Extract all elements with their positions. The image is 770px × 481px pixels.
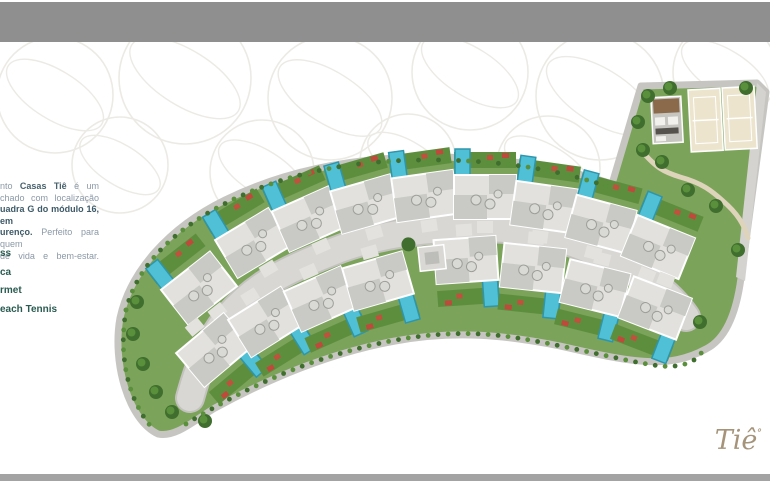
shrub [126, 377, 131, 382]
shrub [263, 379, 268, 384]
intro-line-2: chado com localização [0, 193, 99, 205]
shrub [699, 351, 704, 356]
shrub [134, 280, 139, 285]
shrub [121, 347, 126, 352]
amenity-item-brinquedoteca: ca [0, 268, 99, 278]
shrub [555, 343, 560, 348]
shrub [673, 364, 678, 369]
shrub [663, 364, 668, 369]
shrub [122, 318, 127, 323]
clubhouse [651, 96, 683, 144]
shrub [223, 201, 228, 206]
shrub [486, 160, 491, 165]
shrub [241, 193, 246, 198]
shrub [165, 241, 170, 246]
shrub [136, 405, 141, 410]
shrub [188, 222, 193, 227]
shrub [486, 332, 491, 337]
shrub [525, 337, 530, 342]
shrub [396, 337, 401, 342]
top-gray-bar [0, 2, 770, 42]
site-plan-svg [0, 0, 770, 481]
shrub [574, 347, 579, 352]
shrub [317, 168, 322, 173]
shrub [436, 158, 441, 163]
driveway [456, 224, 473, 237]
logo-bird-icon: ˚ [755, 428, 761, 442]
amenity-item-fitness: ss [0, 249, 99, 259]
shrub [123, 367, 128, 372]
shrub [319, 357, 324, 362]
shrub [426, 333, 431, 338]
shrub [338, 351, 343, 356]
shrub [210, 406, 215, 411]
shrub [288, 175, 293, 180]
shrub [151, 255, 156, 260]
shrub [180, 228, 185, 233]
shrub [386, 159, 391, 164]
shrub [476, 159, 481, 164]
shrub [126, 298, 131, 303]
lounger-marker [502, 153, 509, 158]
shrub [683, 362, 688, 367]
shrub [259, 185, 264, 190]
lounger-marker [505, 304, 512, 310]
shrub [506, 162, 511, 167]
shrub [291, 367, 296, 372]
shrub [633, 360, 638, 365]
shrub [192, 416, 197, 421]
shrub [623, 358, 628, 363]
shrub [205, 211, 210, 216]
shrub [327, 166, 332, 171]
shrub [145, 263, 150, 268]
shrub [300, 364, 305, 369]
shrub [604, 353, 609, 358]
shrub [377, 341, 382, 346]
shrub [141, 414, 146, 419]
sand-court [688, 88, 723, 152]
shrub [272, 375, 277, 380]
shrub [121, 337, 126, 342]
shrub [121, 328, 126, 333]
shrub [476, 332, 481, 337]
shrub [122, 357, 127, 362]
shrub [346, 163, 351, 168]
amenities-list: ss ca rmet each Tennis [0, 249, 99, 323]
shrub [584, 178, 589, 183]
shrub [565, 173, 570, 178]
shrub [643, 361, 648, 366]
shrub [603, 184, 608, 189]
shrub [250, 189, 255, 194]
shrub [416, 158, 421, 163]
shrub [526, 165, 531, 170]
shrub [184, 422, 189, 427]
shrub [416, 334, 421, 339]
shrub [254, 383, 259, 388]
shrub [130, 289, 135, 294]
brochure-page: { "bars": { "top_color": "#8f8f8f", "bot… [0, 0, 770, 481]
shrub [506, 334, 511, 339]
shrub [496, 161, 501, 166]
amenity-item-gourmet: rmet [0, 286, 99, 296]
shrub [147, 422, 152, 427]
lounger-marker [566, 166, 574, 172]
shrub [297, 173, 302, 178]
shrub [132, 396, 137, 401]
pool [517, 155, 535, 183]
shrub [456, 331, 461, 336]
shrub [309, 360, 314, 365]
shrub [584, 349, 589, 354]
amenity-item-beach-tennis: each Tennis [0, 305, 99, 315]
shrub [232, 197, 237, 202]
pattern-leaf [0, 45, 115, 145]
shrub [436, 332, 441, 337]
intro-line-4: urenço. Perfeito para quem [0, 227, 99, 250]
shrub [386, 339, 391, 344]
shrub [406, 336, 411, 341]
shrub [692, 358, 697, 363]
shrub [218, 402, 223, 407]
shrub [466, 159, 471, 164]
tie-logo: Tiê˚ [708, 420, 768, 456]
shrub [336, 164, 341, 169]
shrub [366, 161, 371, 166]
shrub [545, 341, 550, 346]
shrub [516, 163, 521, 168]
shrub [328, 354, 333, 359]
shrub [376, 160, 381, 165]
shrub [214, 206, 219, 211]
shrub [357, 346, 362, 351]
shrub [281, 371, 286, 376]
shrub [446, 332, 451, 337]
shrub [396, 158, 401, 163]
sand-court [722, 86, 757, 150]
shrub [139, 271, 144, 276]
shrub [545, 168, 550, 173]
pool [482, 280, 499, 307]
shrub [653, 363, 658, 368]
driveway [420, 219, 438, 233]
shrub [594, 180, 599, 185]
shrub [575, 175, 580, 180]
shrub [536, 166, 541, 171]
shrub [565, 345, 570, 350]
lounger-marker [445, 300, 452, 305]
shrub [347, 348, 352, 353]
intro-line-3: uadra G do módulo 16, em [0, 204, 99, 227]
shrub [201, 411, 206, 416]
shrub [158, 248, 163, 253]
shrub [307, 170, 312, 175]
shrub [466, 331, 471, 336]
shrub [456, 158, 461, 163]
shrub [406, 158, 411, 163]
shrub [594, 351, 599, 356]
shrub [278, 178, 283, 183]
driveway [477, 221, 493, 233]
bottom-gray-bar [0, 474, 770, 481]
shrub [614, 355, 619, 360]
shrub [426, 158, 431, 163]
shrub [128, 387, 133, 392]
shrub [236, 392, 241, 397]
shrub [197, 216, 202, 221]
shrub [356, 162, 361, 167]
shrub [124, 308, 129, 313]
intro-line-1: nto Casas Tiê é um [0, 181, 99, 193]
lounger-marker [436, 149, 444, 155]
pattern-circle [268, 36, 392, 160]
pattern-leaf [266, 45, 393, 152]
shrub [367, 343, 372, 348]
shrub [555, 170, 560, 175]
shrub [535, 339, 540, 344]
shrub [245, 388, 250, 393]
shrub [516, 336, 521, 341]
shrub [446, 158, 451, 163]
shrub [173, 234, 178, 239]
driveway [528, 231, 545, 245]
shrub [227, 397, 232, 402]
shrub [496, 333, 501, 338]
shrub [269, 182, 274, 187]
pool [389, 151, 407, 179]
